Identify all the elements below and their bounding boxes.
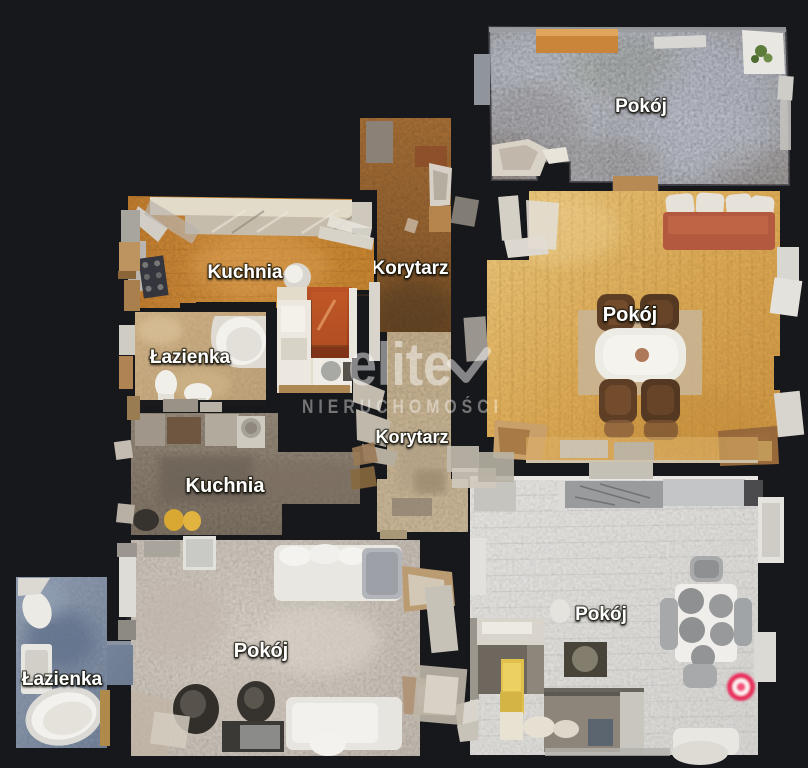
svg-text:Pokój: Pokój: [575, 604, 627, 625]
svg-text:elite: elite: [348, 331, 452, 398]
svg-text:Pokój: Pokój: [234, 640, 288, 662]
svg-text:Pokój: Pokój: [603, 304, 657, 326]
svg-text:Kuchnia: Kuchnia: [208, 262, 283, 283]
svg-text:NIERUCHOMOŚCI: NIERUCHOMOŚCI: [302, 396, 503, 418]
svg-text:Łazienka: Łazienka: [22, 669, 103, 690]
svg-text:Pokój: Pokój: [615, 96, 667, 117]
svg-text:Kuchnia: Kuchnia: [186, 475, 266, 497]
svg-text:Korytarz: Korytarz: [375, 427, 448, 447]
svg-text:Łazienka: Łazienka: [150, 347, 231, 368]
svg-text:Korytarz: Korytarz: [371, 258, 448, 279]
